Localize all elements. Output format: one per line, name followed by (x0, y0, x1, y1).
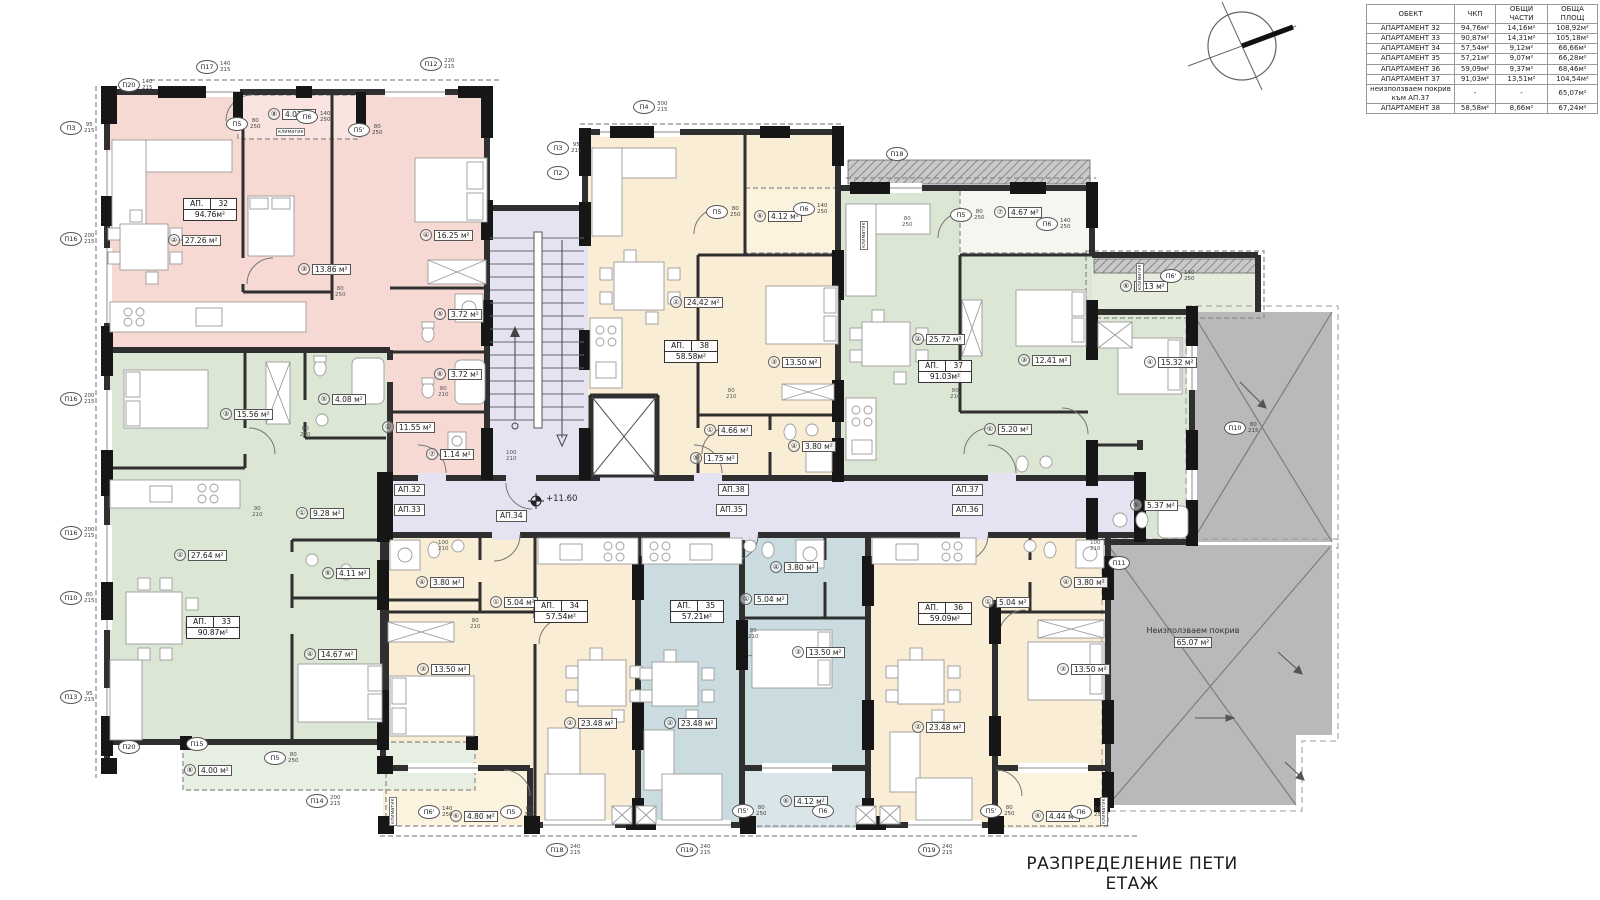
apartment-area: 91.03м² (919, 372, 971, 382)
table-header-cell: ОБЩИ ЧАСТИ (1496, 5, 1548, 24)
room-area: 5.20 м² (998, 424, 1032, 435)
room-label: ②27.26 м² (168, 234, 221, 246)
grid-marker-id: П16 (60, 526, 82, 540)
grid-marker-id: П19 (676, 843, 698, 857)
room-label: ②24.42 м² (670, 296, 723, 308)
room-area: 15.32 м² (1158, 357, 1197, 368)
room-label: ①5.04 м² (982, 596, 1030, 608)
room-area: 1.14 м² (440, 449, 474, 460)
room-label: ⑤1.75 м² (690, 452, 738, 464)
table-header-cell: ОБЕКТ (1367, 5, 1455, 24)
room-number-icon: ④ (1060, 576, 1072, 588)
table-cell: АПАРТАМЕНТ 32 (1367, 24, 1455, 34)
apartment-number: 37 (946, 361, 972, 371)
grid-marker-id: П20 (118, 740, 140, 754)
apartment-label: АП.3858.58м² (664, 340, 718, 363)
table-cell: 9,37м² (1496, 64, 1548, 74)
room-area: 25.72 м² (926, 334, 965, 345)
apartment-label-top: АП.32 (184, 199, 236, 210)
apartment-number: 35 (698, 601, 724, 611)
table-cell: 68,46м² (1548, 64, 1598, 74)
room-label: ④3.80 м² (788, 440, 836, 452)
room-area: 5.04 м² (996, 597, 1030, 608)
room-label: ④15.32 м² (1144, 356, 1197, 368)
table-cell: 59,09м² (1455, 64, 1496, 74)
room-label: ③13.50 м² (768, 356, 821, 368)
door-marker: П580 250 (264, 751, 299, 765)
door-marker-id: П6' (1160, 269, 1182, 283)
room-number-icon: ① (704, 424, 716, 436)
table-cell: АПАРТАМЕНТ 36 (1367, 64, 1455, 74)
room-number-icon: ⑥ (434, 368, 446, 380)
room-label: ①4.66 м² (704, 424, 752, 436)
grid-marker-dims: 300 215 (657, 101, 668, 113)
door-marker: П6'140 250 (1160, 269, 1195, 283)
room-label: ③13.50 м² (417, 663, 470, 675)
ac-unit-note: климатик (1136, 263, 1144, 292)
grid-marker: П395 215 (547, 141, 582, 155)
page-title: РАЗПРЕДЕЛЕНИЕ ПЕТИ ЕТАЖ (1002, 854, 1262, 894)
room-number-icon: ① (740, 593, 752, 605)
apartment-label-top: АП.37 (919, 361, 971, 372)
apartment-area: 58.58м² (665, 352, 717, 362)
room-number-icon: ⑧ (1120, 280, 1132, 292)
room-label: ①11.55 м² (382, 421, 435, 433)
dimension-label: 80 250 (902, 216, 913, 228)
grid-marker: П2 (547, 166, 569, 180)
table-cell: АПАРТАМЕНТ 34 (1367, 44, 1455, 54)
door-marker-dims: 140 250 (1184, 270, 1195, 282)
grid-marker-dims: 240 215 (942, 844, 953, 856)
room-area: 4.00 м² (198, 765, 232, 776)
door-marker-dims: 80 250 (524, 806, 535, 818)
apartment-prefix: АП. (665, 341, 692, 351)
grid-marker-dims: 80 215 (1248, 422, 1259, 434)
room-area: 24.42 м² (684, 297, 723, 308)
door-marker-id: П5 (226, 117, 248, 131)
grid-marker-id: П17 (196, 60, 218, 74)
room-area: 14.67 м² (318, 649, 357, 660)
room-label: ⑧4.00 м² (184, 764, 232, 776)
room-area: 12.41 м² (1032, 355, 1071, 366)
room-number-icon: ② (912, 721, 924, 733)
grid-marker-id: П12 (420, 57, 442, 71)
apartment-label: АП.3659.09м² (918, 602, 972, 625)
room-label: ①5.04 м² (490, 596, 538, 608)
dimension-label: 80 210 (950, 388, 961, 400)
apartment-label-top: АП.36 (919, 603, 971, 614)
apartment-prefix: АП. (187, 617, 214, 627)
room-label: ⑦1.14 м² (426, 448, 474, 460)
table-cell: 66,28м² (1548, 54, 1598, 64)
grid-marker-dims: 240 215 (700, 844, 711, 856)
door-marker-id: П6 (1036, 217, 1058, 231)
grid-marker-id: П10 (1224, 421, 1246, 435)
apartment-number: 33 (214, 617, 240, 627)
grid-marker-dims: 95 215 (84, 691, 95, 703)
room-label: ⑥4.11 м² (322, 567, 370, 579)
room-area: 1.75 м² (704, 453, 738, 464)
room-number-icon: ③ (220, 408, 232, 420)
door-marker: П6140 250 (793, 202, 828, 216)
apartment-label: АП.3557.21м² (670, 600, 724, 623)
dimension-label: 80 210 (726, 388, 737, 400)
room-number-icon: ③ (792, 646, 804, 658)
door-marker: П5'80 250 (980, 804, 1015, 818)
grid-marker: П11 (1108, 556, 1130, 570)
grid-marker-dims: 200 215 (84, 527, 95, 539)
grid-marker: П14200 215 (306, 794, 341, 808)
room-number-icon: ② (168, 234, 180, 246)
room-area: 3.80 м² (1074, 577, 1108, 588)
apartment-prefix: АП. (919, 603, 946, 613)
door-marker-dims: 80 250 (250, 118, 261, 130)
door-marker-dims: 80 250 (1004, 805, 1015, 817)
table-cell: 57,54м² (1455, 44, 1496, 54)
room-number-icon: ⑥ (754, 210, 766, 222)
table-row: АПАРТАМЕНТ 3457,54м²9,12м²66,66м² (1367, 44, 1598, 54)
table-cell: 66,66м² (1548, 44, 1598, 54)
room-area: 13.50 м² (806, 647, 845, 658)
area-summary-table: ОБЕКТЧКПОБЩИ ЧАСТИОБЩА ПЛОЩ АПАРТАМЕНТ 3… (1366, 4, 1598, 114)
room-area: 4.67 м² (1008, 207, 1042, 218)
dimension-label: 90 210 (252, 506, 263, 518)
room-number-icon: ⑤ (434, 308, 446, 320)
room-label: ①9.28 м² (296, 507, 344, 519)
room-label: ④16.25 м² (420, 229, 473, 241)
room-number-icon: ③ (1057, 663, 1069, 675)
room-area: 5.37 м² (1144, 500, 1178, 511)
room-number-icon: ① (984, 423, 996, 435)
corridor-apartment-tag: АП.34 (496, 510, 527, 522)
table-cell: АПАРТАМЕНТ 35 (1367, 54, 1455, 64)
room-number-icon: ⑦ (994, 206, 1006, 218)
door-marker-dims: 140 250 (320, 111, 331, 123)
grid-marker-id: П18 (546, 843, 568, 857)
room-area: 4.11 м² (336, 568, 370, 579)
apartment-number: 32 (211, 199, 237, 209)
door-marker-id: П5 (500, 805, 522, 819)
room-label: ⑥3.72 м² (434, 368, 482, 380)
dimension-label: 80 210 (438, 386, 449, 398)
grid-marker-id: П13 (60, 690, 82, 704)
room-area: 15.56 м² (234, 409, 273, 420)
door-marker-id: П5 (950, 208, 972, 222)
room-label: ⑥4.80 м² (450, 810, 498, 822)
room-area: 13.50 м² (431, 664, 470, 675)
grid-marker-dims: 95 215 (571, 142, 582, 154)
grid-marker: П1080 215 (60, 591, 95, 605)
table-cell: 14,16м² (1496, 24, 1548, 34)
room-area: 27.64 м² (188, 550, 227, 561)
room-number-icon: ② (670, 296, 682, 308)
room-number-icon: ① (982, 596, 994, 608)
apartment-prefix: АП. (184, 199, 211, 209)
grid-marker-id: П3 (60, 121, 82, 135)
door-marker-dims: 140 250 (442, 806, 453, 818)
room-label: ①5.20 м² (984, 423, 1032, 435)
table-row: АПАРТАМЕНТ 3858,58м²8,66м²67,24м² (1367, 103, 1598, 113)
apartment-label: АП.3457.54м² (534, 600, 588, 623)
room-number-icon: ② (912, 333, 924, 345)
level-mark: +11.60 (546, 494, 577, 504)
table-cell: 104,54м² (1548, 74, 1598, 84)
room-area: 27.26 м² (182, 235, 221, 246)
dimension-label: 100 210 (506, 450, 517, 462)
grid-marker-id: П4 (633, 100, 655, 114)
grid-marker-id: П16 (60, 392, 82, 406)
room-label: ⑦4.67 м² (994, 206, 1042, 218)
grid-marker: П18 (886, 147, 908, 161)
apartment-label-top: АП.35 (671, 601, 723, 612)
grid-marker-id: П14 (306, 794, 328, 808)
room-label: ②23.48 м² (564, 717, 617, 729)
room-number-icon: ⑤ (318, 393, 330, 405)
room-number-icon: ④ (416, 576, 428, 588)
room-number-icon: ③ (417, 663, 429, 675)
dimension-label: 80 250 (335, 286, 346, 298)
room-number-icon: ④ (1144, 356, 1156, 368)
table-row: АПАРТАМЕНТ 3791,03м²13,51м²104,54м² (1367, 74, 1598, 84)
room-label: ③13.86 м² (298, 263, 351, 275)
grid-marker-dims: 200 215 (330, 795, 341, 807)
door-marker: П6140 250 (296, 110, 331, 124)
room-area: 3.72 м² (448, 309, 482, 320)
room-label: ②23.48 м² (664, 717, 717, 729)
room-label: ②25.72 м² (912, 333, 965, 345)
apartment-label-top: АП.38 (665, 341, 717, 352)
room-number-icon: ⑧ (184, 764, 196, 776)
room-number-icon: ⑥ (322, 567, 334, 579)
room-area: 23.48 м² (578, 718, 617, 729)
room-number-icon: ⑤ (690, 452, 702, 464)
grid-marker-dims: 95 215 (84, 122, 95, 134)
grid-marker: П16200 215 (60, 392, 95, 406)
room-area: 5.04 м² (754, 594, 788, 605)
room-area: 23.48 м² (678, 718, 717, 729)
room-number-icon: ③ (1018, 354, 1030, 366)
dimension-label: 80 210 (470, 618, 481, 630)
roof-area: 65.07 м² (1174, 637, 1213, 648)
floor-plan-page: Неизползваем покрив 65.07 м² +11.60 РАЗП… (0, 0, 1600, 900)
room-label: ④3.80 м² (1060, 576, 1108, 588)
grid-marker-id: П10 (60, 591, 82, 605)
table-cell: 91,03м² (1455, 74, 1496, 84)
table-cell: 67,24м² (1548, 103, 1598, 113)
room-area: 13.50 м² (782, 357, 821, 368)
grid-marker-id: П3 (547, 141, 569, 155)
roof-label-text: Неизползваем покрив (1126, 626, 1260, 635)
room-number-icon: ⑥ (1032, 810, 1044, 822)
table-row: АПАРТАМЕНТ 3390,87м²14,31м²105,18м² (1367, 34, 1598, 44)
dimension-label: 100 210 (438, 540, 449, 552)
corridor-apartment-tag: АП.32 (394, 484, 425, 496)
room-number-icon: ④ (304, 648, 316, 660)
door-marker-id: П5 (706, 205, 728, 219)
apartment-area: 94.76м² (184, 210, 236, 220)
table-cell: АПАРТАМЕНТ 33 (1367, 34, 1455, 44)
table-cell: 90,87м² (1455, 34, 1496, 44)
table-cell: 58,58м² (1455, 103, 1496, 113)
table-cell: 8,66м² (1496, 103, 1548, 113)
ac-unit-note: климатик (276, 128, 305, 136)
door-marker: П580 250 (226, 117, 261, 131)
room-label: ⑤4.08 м² (318, 393, 366, 405)
room-number-icon: ⑥ (780, 795, 792, 807)
grid-marker-dims: 200 215 (84, 393, 95, 405)
grid-marker: П1395 215 (60, 690, 95, 704)
grid-marker: П16200 215 (60, 526, 95, 540)
grid-marker: П20140 215 (118, 78, 153, 92)
door-marker-id: П6' (418, 805, 440, 819)
grid-marker: П4300 215 (633, 100, 668, 114)
door-marker: П6 (812, 804, 834, 818)
door-marker: П6140 250 (1036, 217, 1071, 231)
ac-unit-note: климатик (860, 221, 868, 250)
roof-label: Неизползваем покрив 65.07 м² (1126, 626, 1260, 648)
table-cell: 65,07м² (1548, 84, 1598, 103)
apartment-area: 90.87м² (187, 628, 239, 638)
table-cell: 105,18м² (1548, 34, 1598, 44)
apartment-label-top: АП.34 (535, 601, 587, 612)
door-marker-id: П5' (980, 804, 1002, 818)
apartment-prefix: АП. (535, 601, 562, 611)
door-marker: П6'140 250 (418, 805, 453, 819)
room-area: 3.80 м² (802, 441, 836, 452)
room-area: 4.80 м² (464, 811, 498, 822)
apartment-prefix: АП. (919, 361, 946, 371)
room-area: 3.72 м² (448, 369, 482, 380)
door-marker: П5'80 250 (732, 804, 767, 818)
apartment-area: 57.54м² (535, 612, 587, 622)
apartment-number: 34 (562, 601, 588, 611)
room-area: 3.80 м² (784, 562, 818, 573)
door-marker-id: П6 (296, 110, 318, 124)
door-marker-dims: 140 250 (817, 203, 828, 215)
table-row: АПАРТАМЕНТ 3557,21м²9,07м²66,28м² (1367, 54, 1598, 64)
apartment-area: 59.09м² (919, 614, 971, 624)
room-number-icon: ④ (770, 561, 782, 573)
corridor-apartment-tag: АП.35 (716, 504, 747, 516)
room-number-icon: ② (564, 717, 576, 729)
door-marker-id: П6 (1070, 805, 1092, 819)
table-cell: 13,51м² (1496, 74, 1548, 84)
door-marker: П580 250 (500, 805, 535, 819)
door-marker-id: П5 (264, 751, 286, 765)
room-label: ⑤3.72 м² (434, 308, 482, 320)
grid-marker-id: П15 (186, 737, 208, 751)
table-cell: 9,07м² (1496, 54, 1548, 64)
grid-marker: П19240 215 (918, 843, 953, 857)
table-cell: неизползваем покрив към АП.37 (1367, 84, 1455, 103)
room-label: ③12.41 м² (1018, 354, 1071, 366)
grid-marker-dims: 220 215 (444, 58, 455, 70)
room-number-icon: ④ (420, 229, 432, 241)
corridor-apartment-tag: АП.33 (394, 504, 425, 516)
door-marker-dims: 80 250 (730, 206, 741, 218)
room-area: 16.25 м² (434, 230, 473, 241)
table-cell: 14,31м² (1496, 34, 1548, 44)
room-number-icon: ② (174, 549, 186, 561)
room-label: ②23.48 м² (912, 721, 965, 733)
grid-marker-id: П11 (1108, 556, 1130, 570)
grid-marker: П20 (118, 740, 140, 754)
grid-marker: П395 215 (60, 121, 95, 135)
room-area: 11.55 м² (396, 422, 435, 433)
room-area: 5.04 м² (504, 597, 538, 608)
room-number-icon: ⑦ (426, 448, 438, 460)
room-number-icon: ⑤ (1130, 499, 1142, 511)
grid-marker: П15 (186, 737, 208, 751)
door-marker-dims: 80 250 (372, 124, 383, 136)
dimension-label: 100 210 (1090, 540, 1101, 552)
grid-marker-id: П16 (60, 232, 82, 246)
grid-marker-id: П18 (886, 147, 908, 161)
room-label: ③15.56 м² (220, 408, 273, 420)
grid-marker-id: П20 (118, 78, 140, 92)
apartment-area: 57.21м² (671, 612, 723, 622)
apartment-number: 38 (692, 341, 718, 351)
corridor-apartment-tag: АП.38 (718, 484, 749, 496)
door-marker-id: П6 (793, 202, 815, 216)
grid-marker-dims: 140 215 (220, 61, 231, 73)
room-area: 4.66 м² (718, 425, 752, 436)
grid-marker: П1080 215 (1224, 421, 1259, 435)
grid-marker-dims: 140 215 (142, 79, 153, 91)
room-label: ②27.64 м² (174, 549, 227, 561)
room-number-icon: ⑧ (268, 108, 280, 120)
table-cell: - (1455, 84, 1496, 103)
plan-labels-layer: Неизползваем покрив 65.07 м² +11.60 РАЗП… (0, 0, 1600, 900)
table-cell: АПАРТАМЕНТ 38 (1367, 103, 1455, 113)
room-area: 3.80 м² (430, 577, 464, 588)
apartment-label: АП.3294.76м² (183, 198, 237, 221)
room-label: ④14.67 м² (304, 648, 357, 660)
room-label: ③13.50 м² (792, 646, 845, 658)
room-area: 13.86 м² (312, 264, 351, 275)
room-label: ③13.50 м² (1057, 663, 1110, 675)
table-header-row: ОБЕКТЧКПОБЩИ ЧАСТИОБЩА ПЛОЩ (1367, 5, 1598, 24)
room-number-icon: ② (664, 717, 676, 729)
table-row: АПАРТАМЕНТ 3659,09м²9,37м²68,46м² (1367, 64, 1598, 74)
door-marker-dims: 140 250 (1060, 218, 1071, 230)
table-cell: 108,92м² (1548, 24, 1598, 34)
door-marker-dims: 80 250 (288, 752, 299, 764)
room-number-icon: ③ (298, 263, 310, 275)
room-label: ①5.04 м² (740, 593, 788, 605)
grid-marker: П18240 215 (546, 843, 581, 857)
door-marker: П580 250 (706, 205, 741, 219)
table-cell: 57,21м² (1455, 54, 1496, 64)
room-number-icon: ④ (788, 440, 800, 452)
table-cell: 9,12м² (1496, 44, 1548, 54)
room-number-icon: ③ (768, 356, 780, 368)
table-header-cell: ЧКП (1455, 5, 1496, 24)
table-header-cell: ОБЩА ПЛОЩ (1548, 5, 1598, 24)
ac-unit-note: климатик (1100, 797, 1108, 826)
room-number-icon: ① (296, 507, 308, 519)
door-marker-id: П5' (348, 123, 370, 137)
door-marker-dims: 80 250 (756, 805, 767, 817)
apartment-label: АП.3390.87м² (186, 616, 240, 639)
apartment-label: АП.3791.03м² (918, 360, 972, 383)
apartment-number: 36 (946, 603, 972, 613)
corridor-apartment-tag: АП.37 (952, 484, 983, 496)
room-label: ⑤5.37 м² (1130, 499, 1178, 511)
grid-marker-id: П2 (547, 166, 569, 180)
apartment-label-top: АП.33 (187, 617, 239, 628)
grid-marker-dims: 80 215 (84, 592, 95, 604)
